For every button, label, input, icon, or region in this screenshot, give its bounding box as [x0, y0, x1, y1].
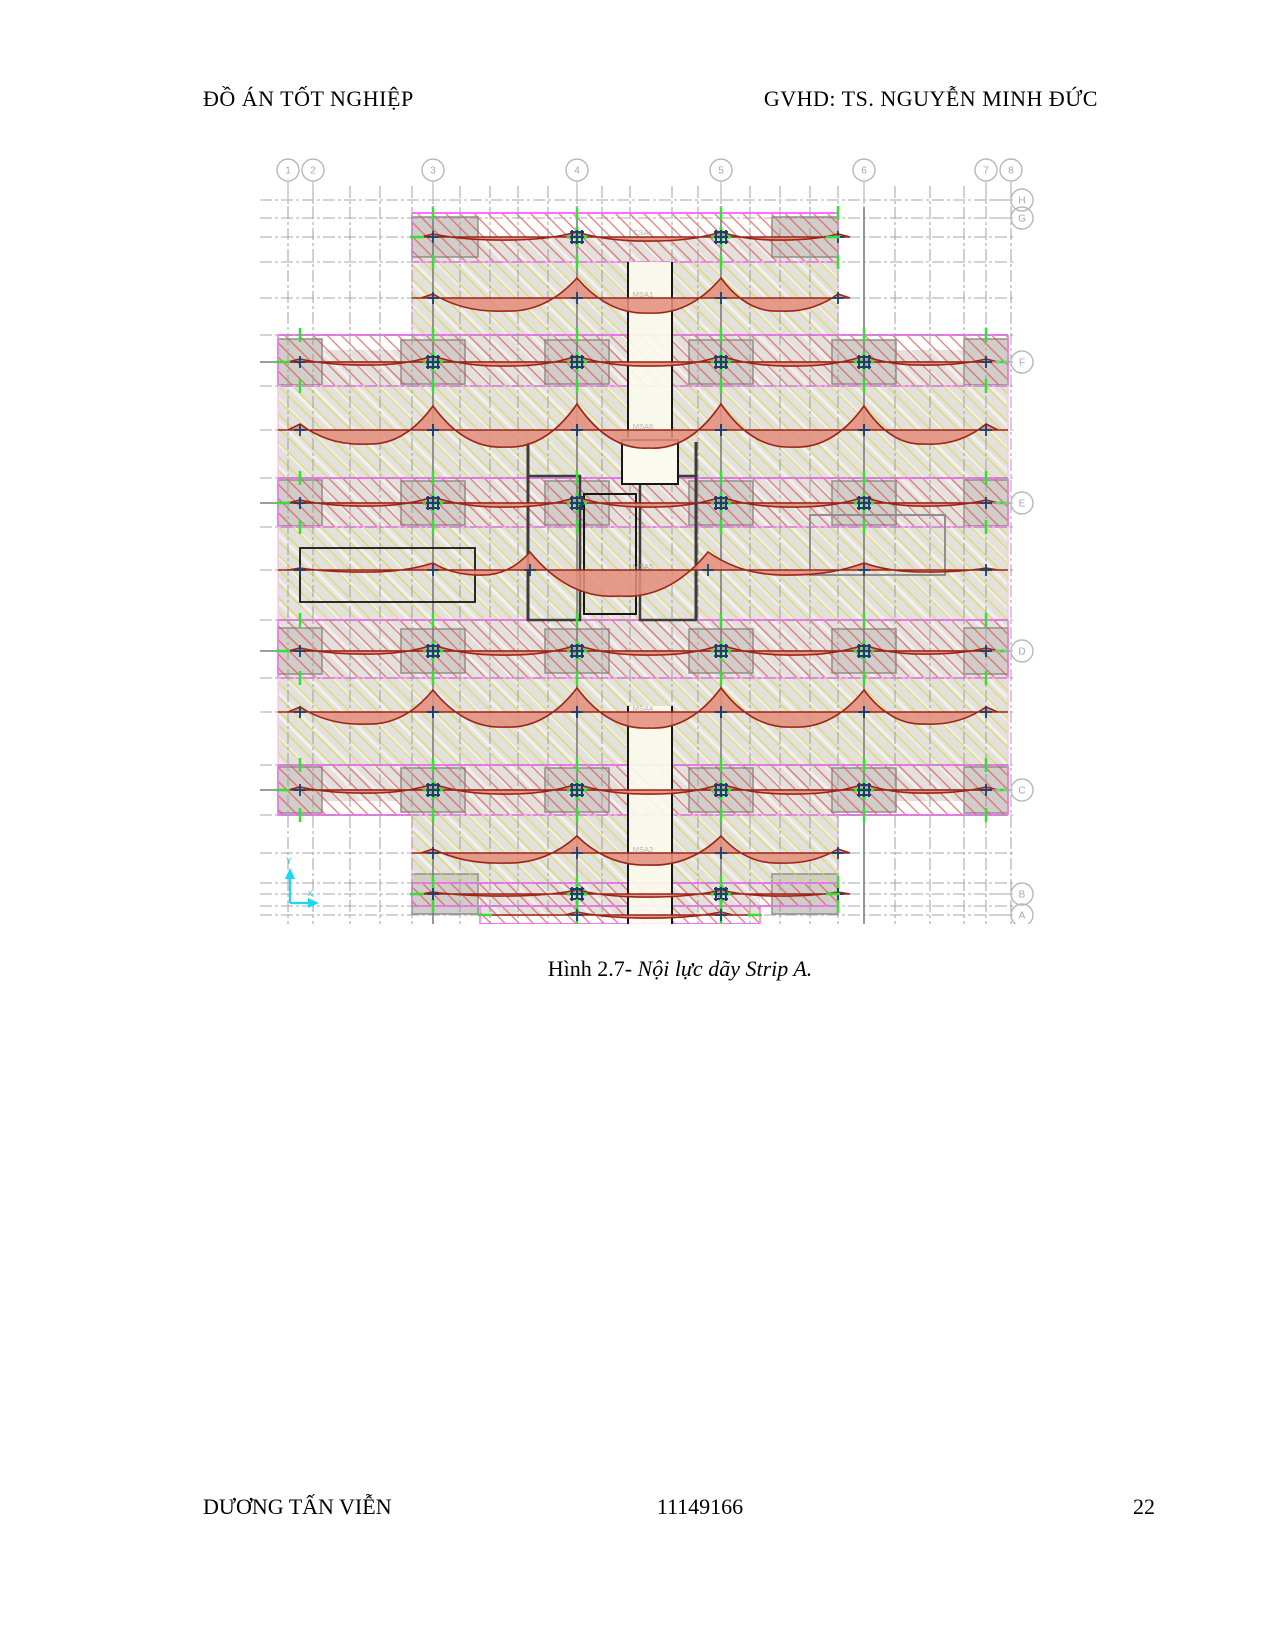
svg-text:MSA2: MSA2 [633, 845, 653, 854]
header-right: GVHD: TS. NGUYỄN MINH ĐỨC [764, 86, 1098, 112]
svg-text:C: C [1018, 786, 1025, 797]
svg-text:CSA1: CSA1 [633, 228, 653, 237]
strip-force-diagram-svg: 12345678HGFEDCBACSA1MSA1MSA6MSA5MSA4MSA2… [250, 146, 1050, 924]
svg-text:MSA1: MSA1 [633, 290, 653, 299]
footer-student-id: 11149166 [400, 1494, 1000, 1520]
svg-text:5: 5 [718, 166, 724, 177]
svg-text:4: 4 [574, 166, 580, 177]
svg-text:B: B [1019, 890, 1026, 901]
svg-text:MSA4: MSA4 [633, 704, 653, 713]
svg-text:E: E [1019, 499, 1026, 510]
figure-caption: Hình 2.7- Nội lực dãy Strip A. [380, 956, 980, 982]
svg-text:F: F [1019, 358, 1025, 369]
strip-force-diagram: 12345678HGFEDCBACSA1MSA1MSA6MSA5MSA4MSA2… [250, 146, 1050, 924]
header-left: ĐỒ ÁN TỐT NGHIỆP [203, 86, 414, 112]
svg-text:6: 6 [861, 166, 867, 177]
figure-caption-title: Nội lực dãy Strip A. [638, 956, 813, 981]
svg-text:x: x [308, 888, 313, 898]
svg-text:H: H [1018, 196, 1025, 207]
svg-text:G: G [1018, 214, 1026, 225]
svg-text:Y: Y [286, 856, 292, 866]
footer-author: DƯƠNG TẤN VIỄN [203, 1494, 392, 1520]
svg-text:D: D [1018, 647, 1025, 658]
svg-text:A: A [1019, 911, 1026, 922]
svg-text:8: 8 [1008, 166, 1014, 177]
svg-text:2: 2 [310, 166, 316, 177]
footer-page-number: 22 [1133, 1494, 1155, 1520]
svg-text:7: 7 [983, 166, 989, 177]
svg-text:MSA5: MSA5 [633, 562, 653, 571]
figure-caption-number: Hình 2.7- [548, 956, 638, 981]
svg-text:3: 3 [430, 166, 436, 177]
svg-text:MSA6: MSA6 [633, 422, 653, 431]
svg-text:1: 1 [285, 166, 291, 177]
